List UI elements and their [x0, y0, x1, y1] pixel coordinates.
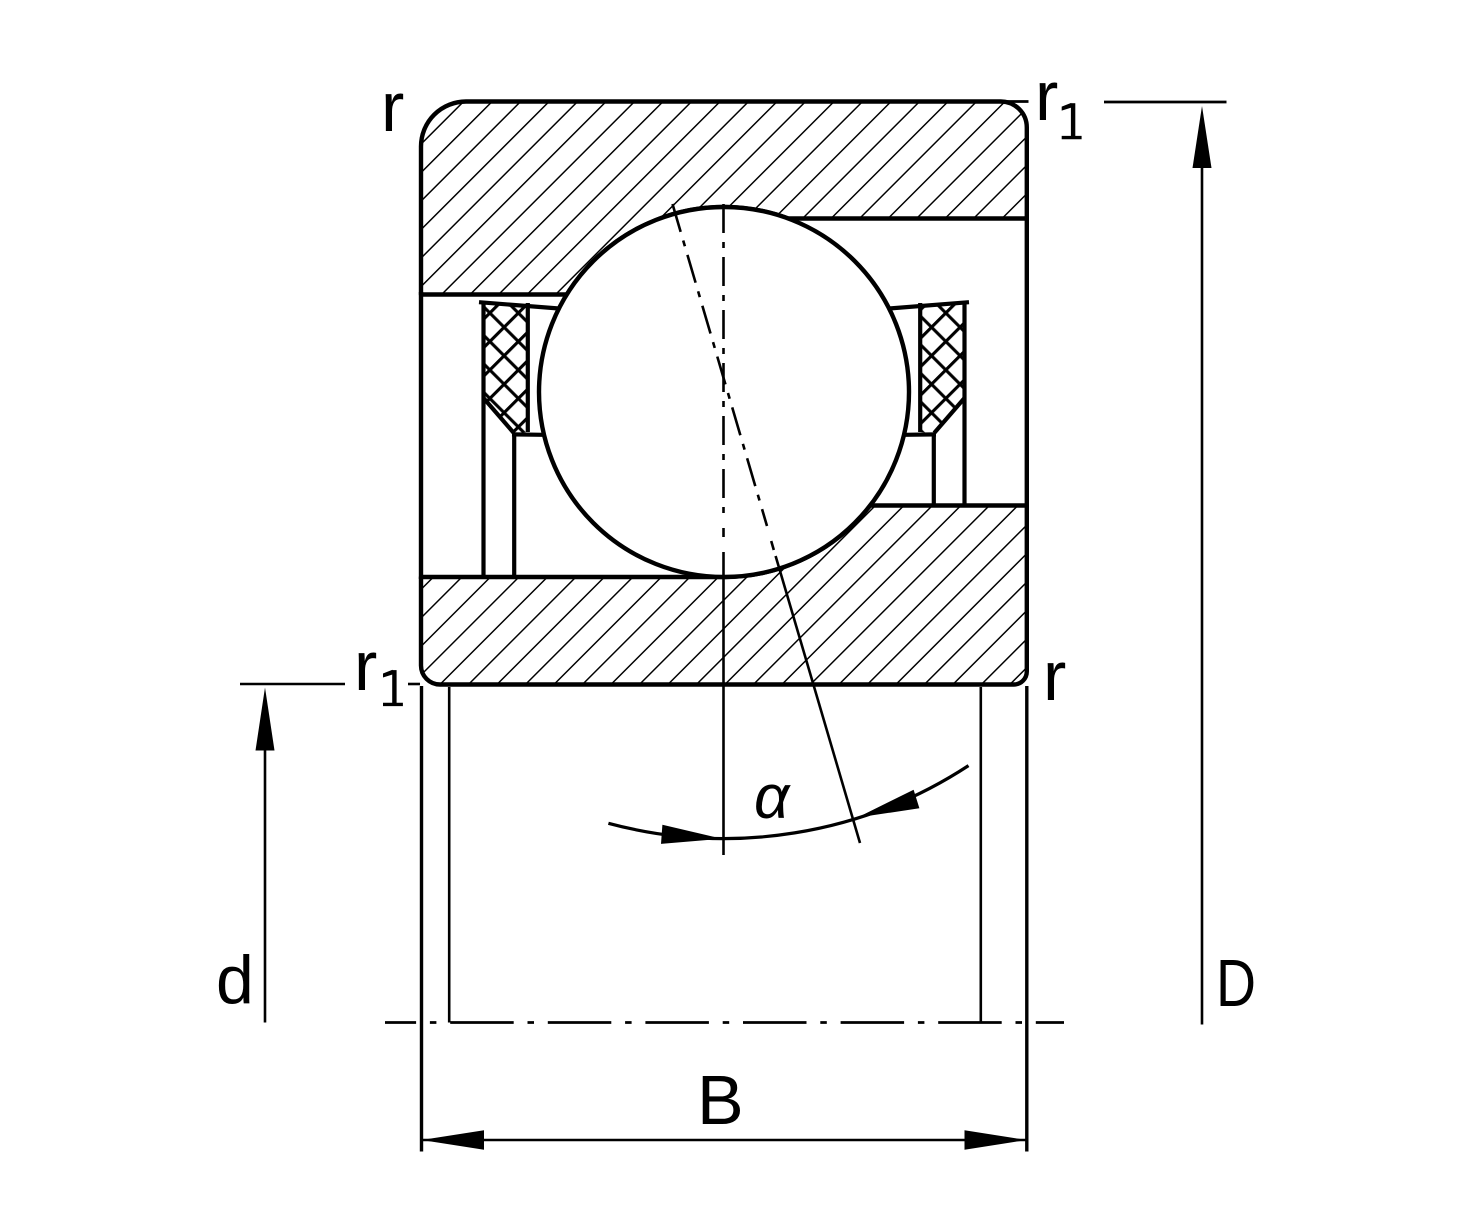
svg-text:r: r: [381, 68, 404, 146]
svg-text:B: B: [697, 1061, 744, 1139]
svg-text:r: r: [354, 627, 377, 705]
svg-text:r: r: [1043, 637, 1066, 715]
svg-text:α: α: [754, 763, 791, 832]
svg-text:d: d: [216, 942, 254, 1018]
svg-text:D: D: [1216, 946, 1256, 1021]
svg-text:r: r: [1035, 57, 1058, 135]
